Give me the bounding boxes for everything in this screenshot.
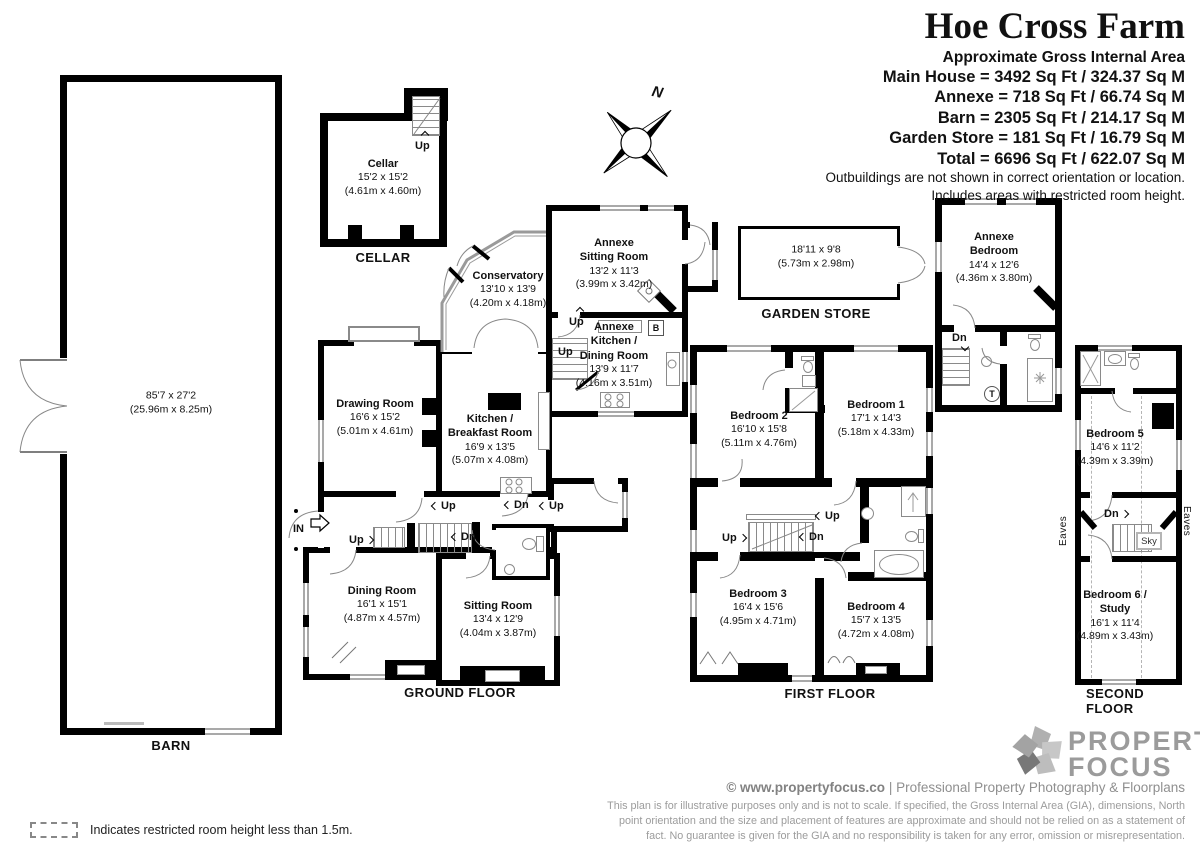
room-dims: 16'10 x 15'8 [721,424,797,438]
room-dims: 13'10 x 13'9 [470,284,546,298]
window [303,627,309,657]
window [854,345,898,352]
room-dims: 15'2 x 15'2 [345,172,421,186]
room-metric: (25.96m x 8.25m) [130,403,212,417]
window [792,675,812,682]
wall [1133,388,1176,394]
wall [824,552,860,561]
room-label-bedroom4: Bedroom 4 15'7 x 13'5 (4.72m x 4.08m) [838,600,914,642]
dn-text: Dn [514,499,529,511]
up-text: Up [558,346,573,358]
wall [1112,556,1176,562]
wall [815,352,824,478]
wall [697,478,825,487]
north-label: N [650,83,664,102]
window [1102,679,1136,685]
room-label-annexe-kitchen: Annexe Kitchen / Dining Room 13'9 x 11'7… [576,320,652,390]
sink-icon [861,507,874,520]
dn-text: Dn [1104,508,1119,520]
stairs [373,527,405,548]
room-metric: (4.89m x 3.43m) [1077,630,1153,644]
door-gap [718,478,740,487]
toilet-icon [918,529,924,543]
left-arrow-icon [799,533,807,541]
eaves-label-left: Eaves [1058,516,1069,546]
room-dims: 17'1 x 14'3 [838,413,914,427]
door-gap [718,552,740,561]
door-gap [832,478,856,487]
room-dims: 15'7 x 13'5 [838,615,914,629]
door-gap [330,547,356,553]
window [926,432,933,456]
annexe-up-label: Up [558,346,573,358]
skylight-tag: Sky [1136,532,1162,550]
toilet-icon [522,538,536,550]
up-text: Up [441,500,456,512]
window [1176,440,1182,470]
room-metric: (4.16m x 3.51m) [576,376,652,390]
sink-icon [802,375,816,387]
room-label-sitting-room: Sitting Room 13'4 x 12'9 (4.04m x 3.87m) [460,599,536,641]
shower-icon [901,486,926,517]
area-garden-store: Garden Store = 181 Sq Ft / 16.79 Sq M [826,128,1185,148]
wall [697,552,817,561]
wall [1000,332,1007,412]
room-name: Sitting Room [460,599,536,613]
door-gap [466,553,490,559]
room-name: Bedroom 1 [838,398,914,412]
stairs-up-label: Up [432,500,456,512]
room-label-barn: 85'7 x 27'2 (25.96m x 8.25m) [130,389,212,416]
brand-line-2: FOCUS [1068,755,1200,781]
window [727,345,771,352]
room-label-bedroom5: Bedroom 5 14'6 x 11'2 (4.39m x 3.39m) [1077,427,1153,469]
annexe-bedroom-stairs [942,348,970,386]
page-title: Hoe Cross Farm [826,8,1185,47]
room-metric: (4.39m x 3.39m) [1077,455,1153,469]
window [648,205,674,211]
kitchen-unit-block [488,393,521,410]
stairs-up-label: Up [722,532,746,544]
room-metric: (5.73m x 2.98m) [778,257,854,271]
door-gap [815,558,824,578]
door-gap [472,348,538,354]
area-annexe: Annexe = 718 Sq Ft / 66.74 Sq M [826,87,1185,107]
chimney-breast [422,398,442,415]
brand-line-1: PROPERTY [1068,729,1200,755]
credit-line: © www.propertyfocus.co | Professional Pr… [726,780,1185,795]
room-dims: 13'4 x 12'9 [460,614,536,628]
room-label-conservatory: Conservatory 13'10 x 13'9 (4.20m x 4.18m… [470,269,546,311]
room-label-bedroom6: Bedroom 6 / Study 16'1 x 11'4 (4.89m x 3… [1077,588,1153,644]
door-gap [682,240,688,264]
property-focus-logo-icon [1011,726,1067,781]
left-arrow-icon [431,502,439,510]
wall [1081,388,1115,394]
room-metric: (4.20m x 4.18m) [470,297,546,311]
kitchen-counter [538,392,550,450]
disclaimer-line: point orientation and the size and place… [607,814,1185,829]
door-gap [492,530,496,550]
right-arrow-icon [738,534,746,542]
wall [1112,492,1176,498]
wall [1081,556,1090,562]
stairs-dn-label: Dn [452,531,476,543]
room-metric: (5.01m x 4.61m) [336,425,414,439]
window [690,444,697,478]
annexe-up-label: Up [569,316,584,328]
room-label-kitchen: Kitchen / Breakfast Room 16'9 x 13'5 (5.… [448,412,532,468]
door-gap [785,368,793,388]
room-name: Bedroom 6 / Study [1077,588,1153,617]
shower-icon [1080,351,1101,386]
window [935,242,942,272]
stair-rail [746,514,816,520]
annexe-hob [600,392,630,408]
up-text: Up [722,532,737,544]
door-gap [1000,346,1007,364]
toilet-icon [1030,339,1040,351]
fireplace-inset [485,670,520,682]
room-metric: (4.61m x 4.60m) [345,185,421,199]
sky-text: Sky [1141,536,1157,547]
window [682,352,688,382]
window [622,492,628,518]
bath-icon [879,554,919,575]
stairs-up-label: Up [349,534,373,546]
door-gap [894,246,900,284]
stair-wall [407,523,415,553]
annexe-sink-unit [666,352,680,386]
restricted-height-swatch [30,822,78,838]
room-dims: 16'6 x 15'2 [336,412,414,426]
stairs-dn-label: Dn [800,531,824,543]
eaves-label-right: Eaves [1181,506,1192,536]
fireplace-inset [865,666,887,674]
room-dims: 14'6 x 11'2 [1077,442,1153,456]
window [926,388,933,412]
stairs-up-label: Up [816,510,840,522]
subtitle: Approximate Gross Internal Area [826,49,1185,67]
floorplan-page: Hoe Cross Farm Approximate Gross Interna… [0,0,1200,848]
room-metric: (4.95m x 4.71m) [720,615,796,629]
toilet-icon [536,536,544,552]
stairs-dn-label: Dn [1104,508,1128,520]
room-name: Bedroom 3 [720,587,796,601]
note-orientation: Outbuildings are not shown in correct or… [826,169,1185,187]
wc-outline [492,524,550,580]
room-metric: (4.04m x 3.87m) [460,627,536,641]
room-dims: 18'11 x 9'8 [778,243,854,257]
note-restricted: Includes areas with restricted room heig… [826,187,1185,205]
tank-tag: T [984,386,1000,402]
window [554,596,560,636]
right-arrow-icon [1120,510,1128,518]
room-dims: 16'4 x 15'6 [720,602,796,616]
legend-text: Indicates restricted room height less th… [90,823,353,837]
window [690,385,697,413]
door-gap [594,478,618,484]
barn-sill [104,722,144,725]
room-name: Bedroom 4 [838,600,914,614]
room-label-drawing-room: Drawing Room 16'6 x 15'2 (5.01m x 4.61m) [336,397,414,439]
credit-text: Professional Property Photography & Floo… [896,780,1185,795]
left-arrow-icon [504,501,512,509]
title-block: Hoe Cross Farm Approximate Gross Interna… [826,8,1185,204]
up-text: Up [349,534,364,546]
dn-text: Dn [461,531,476,543]
chimney-breast [738,663,788,680]
cellar-label: CELLAR [355,250,410,265]
room-metric: (5.18m x 4.33m) [838,426,914,440]
cellar-up-label: Up [415,140,430,152]
sink-icon [504,564,515,575]
room-name: Cellar [345,157,421,171]
stairs-up-label: Up [540,500,564,512]
window [690,530,697,552]
room-name: Annexe Kitchen / Dining Room [576,320,652,363]
legend: Indicates restricted room height less th… [30,822,353,838]
chimney-breast [1152,403,1174,429]
cellar-pier [400,225,414,239]
room-name: Dining Room [344,584,420,598]
up-text: Up [825,510,840,522]
window [712,250,718,280]
shower-icon [1027,358,1053,402]
credit-separator: | [889,780,893,795]
room-dims: 16'9 x 13'5 [448,441,532,455]
chimney-breast [422,430,442,447]
barn-window [205,728,250,735]
door-gap [690,222,712,228]
window [303,583,309,615]
cellar-stairs [412,96,440,136]
toilet-icon [905,531,918,542]
room-metric: (4.36m x 3.80m) [956,272,1032,286]
in-text: IN [293,523,304,535]
boiler-text: B [653,323,660,333]
room-label-bedroom2: Bedroom 2 16'10 x 15'8 (5.11m x 4.76m) [721,409,797,451]
garden-store-label: GARDEN STORE [761,306,870,321]
room-label-bedroom1: Bedroom 1 17'1 x 14'3 (5.18m x 4.33m) [838,398,914,440]
room-name: Kitchen / Breakfast Room [448,412,532,441]
second-floor-label: SECOND FLOOR [1086,686,1162,716]
up-text: Up [549,500,564,512]
room-metric: (5.07m x 4.08m) [448,454,532,468]
cellar-pier [348,225,362,239]
room-metric: (4.72m x 4.08m) [838,628,914,642]
room-dims: 13'2 x 11'3 [576,265,652,279]
room-name: Bedroom 5 [1077,427,1153,441]
door-gap [954,325,975,332]
toilet-icon [803,361,813,373]
window [926,620,933,646]
up-text: Up [415,140,430,152]
room-name: Drawing Room [336,397,414,411]
disclaimer-line: This plan is for illustrative purposes o… [607,799,1185,814]
sink-icon [1108,354,1122,364]
window [318,420,324,462]
barn-door-gap [60,358,67,454]
left-arrow-icon [815,512,823,520]
room-label-dining-room: Dining Room 16'1 x 15'1 (4.87m x 4.57m) [344,584,420,626]
window [598,411,634,417]
room-dims: 85'7 x 27'2 [130,389,212,403]
left-arrow-icon [539,502,547,510]
disclaimer-line: fact. No guarantee is given for the GIA … [607,829,1185,844]
up-text: Up [569,316,584,328]
room-label-bedroom3: Bedroom 3 16'4 x 15'6 (4.95m x 4.71m) [720,587,796,629]
tank-text: T [989,389,995,399]
room-dims: 14'4 x 12'6 [956,259,1032,273]
right-arrow-icon [365,536,373,544]
room-metric: (5.11m x 4.76m) [721,437,797,451]
credit-url: © www.propertyfocus.co [726,780,885,795]
room-name: Annexe Sitting Room [576,236,652,265]
wall [1081,492,1090,498]
area-total: Total = 6696 Sq Ft / 622.07 Sq M [826,149,1185,169]
room-dims: 16'1 x 15'1 [344,599,420,613]
area-barn: Barn = 2305 Sq Ft / 214.17 Sq M [826,108,1185,128]
toilet-icon [1130,358,1139,370]
room-label-annexe-bedroom: Annexe Bedroom 14'4 x 12'6 (4.36m x 3.80… [956,230,1032,286]
room-dims: 16'1 x 11'4 [1077,617,1153,631]
first-floor-label: FIRST FLOOR [784,686,875,701]
disclaimer: This plan is for illustrative purposes o… [607,799,1185,844]
door-gap [396,491,424,497]
hob [500,477,532,494]
bay-window [348,326,420,342]
entrance-in-label: IN [293,523,304,535]
room-label-cellar: Cellar 15'2 x 15'2 (4.61m x 4.60m) [345,157,421,199]
sink-icon [981,356,992,367]
entrance-gap [318,512,324,548]
room-metric: (3.99m x 3.42m) [576,278,652,292]
room-dims: 13'9 x 11'7 [576,363,652,377]
dn-text: Dn [809,531,824,543]
room-label-garden-store: 18'11 x 9'8 (5.73m x 2.98m) [778,243,854,270]
ground-floor-label: GROUND FLOOR [404,685,516,700]
window [600,205,640,211]
compass-icon [575,80,702,207]
window [1055,368,1062,394]
left-arrow-icon [451,533,459,541]
window [926,488,933,514]
stairs-dn-label: Dn [505,499,529,511]
room-metric: (4.87m x 4.57m) [344,612,420,626]
brand-wordmark: PROPERTY FOCUS [1068,729,1200,780]
room-name: Conservatory [470,269,546,283]
barn-label: BARN [151,738,190,753]
fireplace-inset [397,665,425,675]
window [690,593,697,617]
room-name: Bedroom 2 [721,409,797,423]
room-name: Annexe Bedroom [956,230,1032,259]
room-label-annexe-sitting: Annexe Sitting Room 13'2 x 11'3 (3.99m x… [576,236,652,292]
area-main-house: Main House = 3492 Sq Ft / 324.37 Sq M [826,67,1185,87]
